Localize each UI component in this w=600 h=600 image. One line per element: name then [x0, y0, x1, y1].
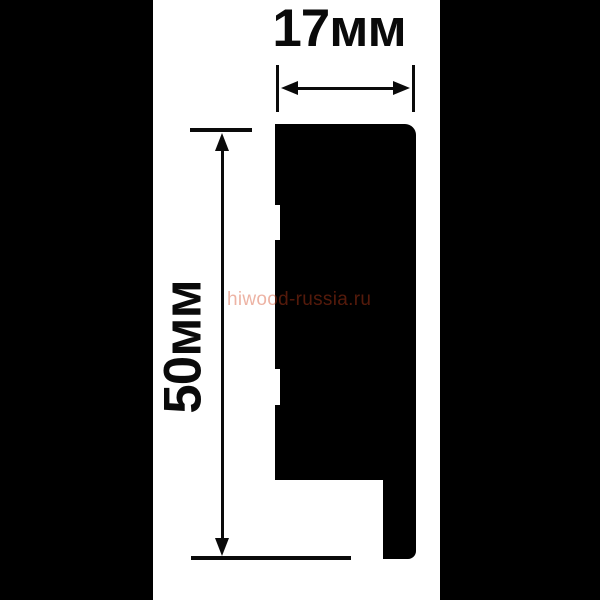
width-dimension-right-tick [412, 65, 415, 112]
height-dimension-line [221, 147, 224, 538]
arrowhead-right-icon [393, 81, 410, 95]
width-dimension-label: 17мм [272, 2, 405, 55]
width-dimension-left-tick [276, 65, 279, 112]
profile-left-notch-lower [275, 369, 280, 405]
height-dimension-top-tick [190, 128, 252, 132]
right-crop-band [440, 0, 600, 600]
watermark-text: hiwood-russia.ru [227, 289, 371, 311]
arrowhead-up-icon [215, 133, 229, 151]
profile-left-notch-upper [275, 205, 280, 240]
height-dimension-label: 50мм [157, 280, 210, 413]
left-crop-band [0, 0, 153, 600]
arrowhead-left-icon [281, 81, 298, 95]
profile-bottom-foot [383, 480, 416, 559]
width-dimension-line [294, 87, 397, 90]
profile-dimension-drawing: 17мм 50мм hiwood-russia.ru [0, 0, 600, 600]
height-dimension-bottom-tick [191, 556, 351, 560]
arrowhead-down-icon [215, 538, 229, 556]
